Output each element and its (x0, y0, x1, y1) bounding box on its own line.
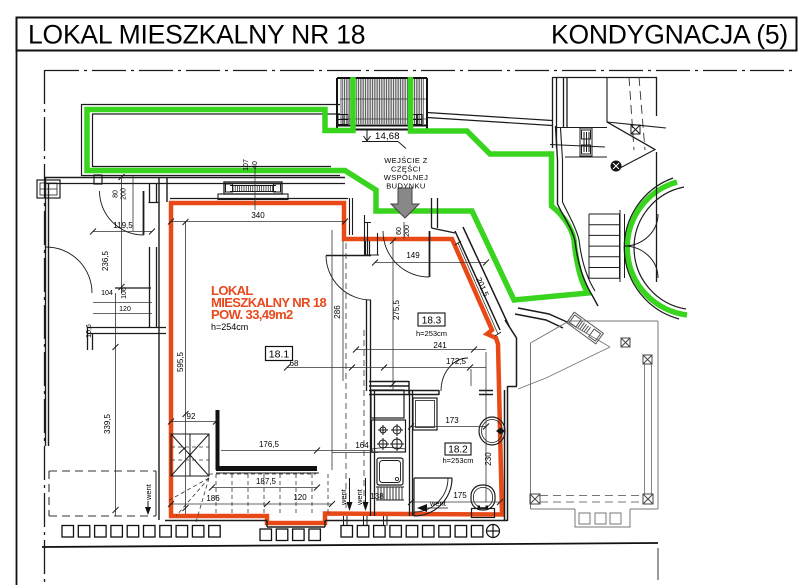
svg-text:595,5: 595,5 (176, 351, 185, 372)
svg-text:149: 149 (406, 251, 420, 260)
svg-text:120: 120 (119, 306, 131, 313)
svg-text:h=253cm: h=253cm (416, 329, 447, 338)
svg-text:187,5: 187,5 (256, 477, 277, 486)
svg-text:60: 60 (396, 227, 403, 235)
svg-text:went: went (355, 488, 364, 506)
svg-text:172,5: 172,5 (446, 357, 467, 366)
svg-text:339,5: 339,5 (103, 413, 112, 434)
svg-text:230: 230 (484, 452, 493, 466)
svg-text:18.1: 18.1 (269, 349, 290, 361)
svg-text:340: 340 (251, 211, 265, 220)
svg-text:104: 104 (101, 290, 113, 297)
svg-text:107: 107 (243, 159, 250, 171)
svg-text:241: 241 (433, 341, 447, 350)
svg-text:200: 200 (404, 225, 411, 237)
svg-text:68: 68 (290, 359, 299, 368)
svg-text:200: 200 (121, 188, 128, 200)
svg-text:120: 120 (293, 493, 307, 502)
svg-text:275,5: 275,5 (392, 299, 401, 320)
svg-text:went: went (339, 488, 348, 506)
svg-text:138: 138 (370, 492, 384, 501)
svg-text:119,5: 119,5 (113, 221, 133, 230)
svg-text:14,68: 14,68 (375, 131, 400, 142)
svg-text:POW. 33,49m2: POW. 33,49m2 (211, 307, 293, 322)
svg-text:175: 175 (453, 491, 467, 500)
svg-text:80: 80 (113, 190, 120, 198)
svg-text:92: 92 (187, 412, 196, 421)
svg-text:h=253cm: h=253cm (442, 456, 473, 465)
svg-text:10,6: 10,6 (86, 324, 93, 338)
svg-text:18.2: 18.2 (448, 445, 468, 456)
svg-text:went: went (144, 483, 153, 501)
svg-text:KONDYGNACJA (5): KONDYGNACJA (5) (551, 20, 788, 50)
svg-text:164: 164 (355, 441, 369, 450)
svg-text:173: 173 (445, 416, 459, 425)
svg-text:176,5: 176,5 (259, 440, 280, 449)
svg-text:went: went (429, 499, 447, 508)
svg-text:18.3: 18.3 (422, 316, 442, 327)
svg-text:h=254cm: h=254cm (211, 322, 248, 332)
svg-text:LOKAL MIESZKALNY NR 18: LOKAL MIESZKALNY NR 18 (28, 20, 365, 50)
svg-text:106: 106 (121, 287, 128, 299)
svg-text:40: 40 (252, 161, 259, 169)
svg-text:BUDYNKU: BUDYNKU (386, 182, 425, 191)
svg-text:186: 186 (206, 494, 220, 503)
svg-text:236,5: 236,5 (101, 250, 110, 271)
svg-text:286: 286 (333, 305, 342, 319)
